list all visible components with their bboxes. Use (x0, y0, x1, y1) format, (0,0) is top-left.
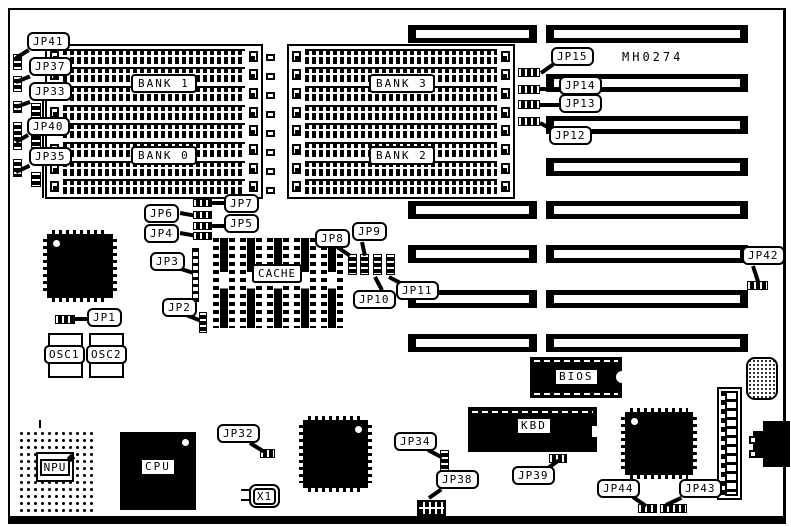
simm-latch-icon (249, 88, 258, 99)
simm-latch-icon (249, 163, 258, 174)
simm-socket (291, 105, 511, 120)
solder-pad (266, 187, 275, 194)
bios-chip: BIOS (530, 357, 622, 398)
simm-latch-icon (249, 69, 258, 80)
chip-notch (616, 371, 628, 383)
keyboard-din-connector (763, 421, 790, 467)
callout-jp14: JP14 (559, 76, 602, 95)
qfp-chip (625, 412, 693, 475)
simm-socket (49, 49, 259, 64)
callout-jp34: JP34 (394, 432, 437, 451)
simm-latch-icon (501, 181, 510, 192)
callout-jp41: JP41 (27, 32, 70, 51)
npu-label: NPU (40, 459, 71, 476)
header-jp38 (417, 500, 446, 516)
solder-pad (266, 130, 275, 137)
callout-jp15: JP15 (551, 47, 594, 66)
pin1-dot (631, 418, 638, 425)
jumper-jp9 (360, 254, 369, 275)
solder-pad (266, 111, 275, 118)
solder-pad (266, 149, 275, 156)
jumper-jp1 (55, 315, 75, 324)
simm-latch-icon (501, 163, 510, 174)
chip-pins (52, 230, 108, 234)
dotted-pad (746, 357, 778, 400)
callout-jp5: JP5 (224, 214, 259, 233)
isa-slot-segment (546, 290, 748, 308)
callout-jp10: JP10 (353, 290, 396, 309)
pin1-dot (355, 426, 362, 433)
isa-slot-segment (408, 334, 537, 352)
bank3-label: BANK 3 (369, 74, 435, 93)
simm-pins (305, 179, 497, 194)
cache-chip (213, 238, 235, 328)
chip-stripe (472, 411, 593, 413)
simm-latch-icon (501, 69, 510, 80)
chip-pins (630, 408, 688, 412)
jumper-jp34 (440, 450, 449, 471)
callout-jp35: JP35 (29, 147, 72, 166)
simm-latch-icon (249, 181, 258, 192)
solder-pad (266, 54, 275, 61)
callout-pointer (540, 103, 559, 107)
jumper-jp12 (518, 117, 540, 126)
simm-latch-icon (292, 125, 301, 136)
simm-socket (49, 179, 259, 194)
simm-latch-icon (292, 107, 301, 118)
jumper-jp2 (199, 312, 207, 333)
callout-jp43: JP43 (679, 479, 722, 498)
isa-slot-segment (408, 245, 537, 263)
simm-pins (63, 49, 245, 64)
simm-latch-icon (249, 125, 258, 136)
ram-jumper-block (31, 172, 41, 187)
solder-pad (266, 92, 275, 99)
chip-body (301, 238, 309, 328)
jumper-jp14 (518, 85, 540, 94)
callout-jp4: JP4 (144, 224, 179, 243)
simm-latch-icon (292, 88, 301, 99)
solder-pad (266, 168, 275, 175)
pin1-dot (182, 439, 189, 446)
callout-jp40: JP40 (27, 117, 70, 136)
jumper-jp7 (193, 199, 212, 207)
isa-slot-segment (546, 334, 748, 352)
bank0-label: BANK 0 (131, 146, 197, 165)
bank1-label: BANK 1 (131, 74, 197, 93)
callout-jp13: JP13 (559, 94, 602, 113)
simm-latch-icon (501, 107, 510, 118)
cache-chip (294, 238, 316, 328)
chip-body (220, 238, 228, 328)
jumper-jp13 (518, 100, 540, 109)
simm-latch-icon (501, 51, 510, 62)
chip-stripe (534, 360, 618, 362)
callout-pointer (540, 87, 559, 91)
jumper-jp15 (518, 68, 540, 77)
chip-notch (592, 426, 597, 437)
simm-latch-icon (249, 51, 258, 62)
callout-jp38: JP38 (436, 470, 479, 489)
simm-latch-icon (292, 163, 301, 174)
chip-stripe (534, 393, 618, 395)
osc1-label: OSC1 (44, 345, 85, 364)
bios-label: BIOS (556, 370, 597, 384)
callout-jp33: JP33 (29, 82, 72, 101)
callout-jp9: JP9 (352, 222, 387, 241)
jumper-jp5 (193, 222, 212, 230)
simm-socket (291, 179, 511, 194)
callout-jp44: JP44 (597, 479, 640, 498)
ram-jumper-block (31, 103, 41, 118)
din-pin (749, 436, 757, 444)
chip-body (247, 238, 255, 328)
simm-latch-icon (501, 88, 510, 99)
simm-block-left (45, 44, 263, 199)
callout-jp11: JP11 (396, 281, 439, 300)
simm-block-right (287, 44, 515, 199)
jumper-jp8 (348, 254, 357, 275)
jumper-jp43 (660, 504, 687, 513)
chip-pins (630, 475, 688, 479)
cpu-label: CPU (142, 460, 174, 474)
pin1-tick (39, 420, 41, 428)
cache-chip (240, 238, 262, 328)
simm-latch-icon (292, 144, 301, 155)
simm-pins (63, 105, 245, 120)
cpu-chip: CPU (120, 432, 196, 510)
kbd-label: KBD (518, 419, 550, 433)
simm-latch-icon (292, 181, 301, 192)
simm-pins (305, 49, 497, 64)
callout-jp2: JP2 (162, 298, 197, 317)
chip-pins (52, 298, 108, 302)
board-code: MH0274 (622, 50, 683, 64)
callout-jp39: JP39 (512, 466, 555, 485)
jumper-jp11 (386, 254, 395, 275)
chip-pins (368, 425, 372, 483)
qfp-chip (303, 420, 368, 488)
isa-slot-segment (408, 25, 537, 43)
x1-label: X1 (253, 488, 276, 505)
isa-slot-segment (408, 201, 537, 219)
callout-jp8: JP8 (315, 229, 350, 248)
simm-latch-icon (292, 51, 301, 62)
callout-pointer (211, 224, 225, 228)
chip-body (274, 238, 282, 328)
connector-pins (725, 391, 738, 496)
simm-latch-icon (249, 107, 258, 118)
simm-latch-icon (501, 144, 510, 155)
solder-pad (266, 73, 275, 80)
callout-pointer (73, 317, 88, 321)
simm-socket (49, 105, 259, 120)
pin1-dot (53, 240, 60, 247)
simm-pins (305, 123, 497, 138)
simm-latch-icon (50, 181, 59, 192)
simm-pins (63, 123, 245, 138)
callout-jp1: JP1 (87, 308, 122, 327)
simm-latch-icon (501, 125, 510, 136)
callout-jp32: JP32 (217, 424, 260, 443)
header-jp3 (192, 248, 199, 302)
simm-latch-icon (292, 69, 301, 80)
simm-pins (305, 105, 497, 120)
callout-jp3: JP3 (150, 252, 185, 271)
chip-pins (308, 416, 363, 420)
cache-chip (267, 238, 289, 328)
crystal-x1: X1 (249, 484, 280, 508)
chip-pins (621, 417, 625, 470)
callout-jp12: JP12 (549, 126, 592, 145)
motherboard-diagram: BANK 1 BANK 0 BANK 3 BANK 2 MH0274 JP41 … (0, 0, 791, 527)
simm-latch-icon (249, 144, 258, 155)
chip-pins (113, 239, 117, 293)
chip-pins (299, 425, 303, 483)
callout-jp6: JP6 (144, 204, 179, 223)
osc2-label: OSC2 (86, 345, 127, 364)
isa-slot-segment (546, 245, 748, 263)
jumper-jp10 (373, 254, 382, 275)
qfp-chip (47, 234, 113, 298)
chip-body (328, 238, 336, 328)
kbd-chip: KBD (468, 407, 597, 452)
isa-slot-segment (546, 201, 748, 219)
cache-label: CACHE (252, 264, 302, 283)
bank2-label: BANK 2 (369, 146, 435, 165)
jumper-jp6 (193, 211, 212, 219)
din-pin (749, 450, 757, 458)
isa-slot-segment (546, 158, 748, 176)
chip-pins (43, 239, 47, 293)
jumper-jp4 (193, 232, 212, 240)
chip-pins (693, 417, 697, 470)
callout-jp37: JP37 (29, 57, 72, 76)
simm-socket (291, 123, 511, 138)
callout-jp7: JP7 (224, 194, 259, 213)
callout-jp42: JP42 (742, 246, 785, 265)
isa-slot-segment (546, 25, 748, 43)
simm-socket (49, 123, 259, 138)
chip-pins (308, 488, 363, 492)
callout-pointer (211, 201, 225, 205)
simm-pins (63, 179, 245, 194)
simm-socket (291, 49, 511, 64)
